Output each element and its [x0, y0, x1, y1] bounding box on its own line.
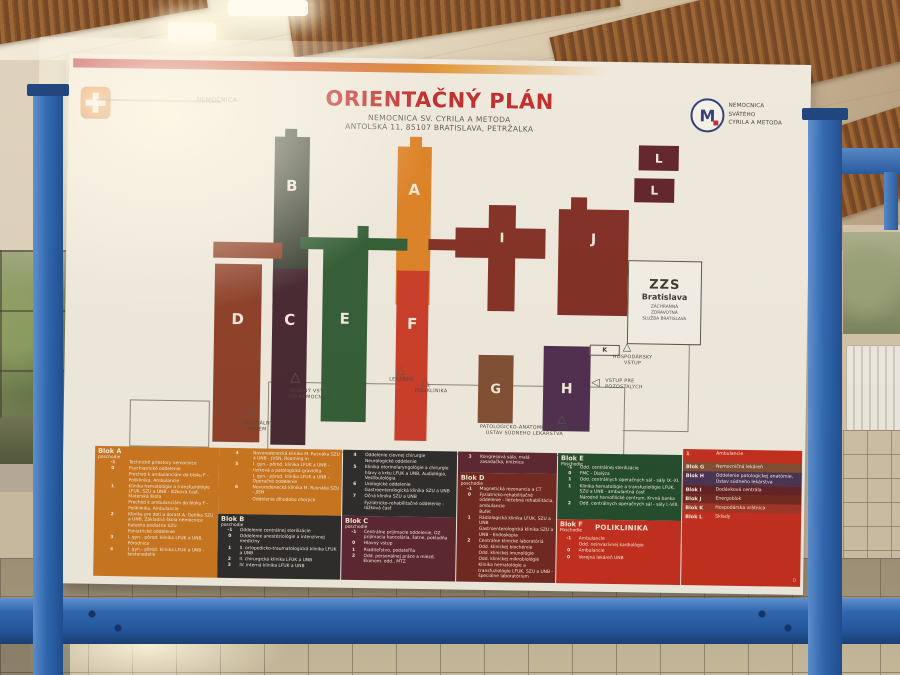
- zzs-station-box: ZZS Bratislava ZÁCHRANNÁ ZDRAVOTNÁ SLUŽB…: [627, 260, 702, 345]
- legend-row: 4I. gyn.- pôrod. klinika LFUK a UNB - še…: [95, 547, 215, 559]
- entrance-marker-icon: △: [623, 341, 632, 352]
- walkway-outline: [129, 399, 210, 447]
- entrance-marker-icon: △: [290, 371, 300, 384]
- legend-block-c: Blok C poschodie -1Centrálne prijímacie …: [341, 516, 456, 582]
- blue-rail-top-right: [842, 148, 900, 174]
- legend-block-b: Blok B poschodie -1Oddelenie centrálnej …: [217, 514, 341, 580]
- entrance-marker-icon: △: [247, 403, 257, 416]
- page-title: ORIENTAČNÝ PLÁN: [249, 85, 631, 115]
- building-connector: [428, 239, 456, 250]
- building-d-wing: [213, 242, 282, 259]
- legend-row: 1Klinika hematológie a transfuziológie L…: [560, 484, 680, 496]
- entrance-marker-icon: △: [396, 365, 405, 376]
- legend-row: Blok LSklady: [682, 512, 801, 523]
- legend-row: 0Fyziatricko-rehabilitačné oddelenie - l…: [459, 493, 554, 510]
- legend-block-header: Blok F Poschodie: [560, 521, 583, 534]
- label-policlinic: POLIKLINIKA: [394, 389, 468, 397]
- legend-block-b-cont: 4Oddelenie cievnej chirurgieNeurologické…: [342, 450, 457, 518]
- legend-block-a-cont: 4Novorodenecká klinika M. Rusnáka SZU a …: [218, 448, 342, 516]
- legend-row: 2Odd. centrálnych operačných sál - sály …: [559, 501, 679, 508]
- zzs-small-text: ZÁCHRANNÁ ZDRAVOTNÁ SLUŽBA BRATISLAVA: [628, 304, 700, 323]
- legend-row: 2Klinika pre deti a dorast A. Getlíka SZ…: [96, 512, 216, 524]
- legend-block-header: Blok C poschodie: [345, 518, 368, 531]
- building-g: G: [478, 355, 514, 424]
- blue-post-left: [33, 88, 63, 675]
- legend-block-f-policlinic: Blok F Poschodie POLIKLINIKA -1Ambulanci…: [556, 519, 681, 585]
- label-bereaved-entrance: VSTUP PRE POZOSTALÝCH: [605, 379, 669, 393]
- legend-row: 6Novorodenecká klinika M. Rusnáka SZU - …: [220, 485, 339, 497]
- building-l1: L: [639, 145, 679, 171]
- legend-row: 1II. ortopedicko-traumatologická klinika…: [219, 545, 338, 557]
- legend-row: I. gyn.- pôrod. klinika LFUK a UNB - Ope…: [221, 474, 340, 486]
- legend-row: 5Klinika otorinolaryngológie a chirurgie…: [345, 465, 455, 482]
- logo-red-dot: [713, 120, 718, 125]
- policlinic-title: POLIKLINIKA: [595, 524, 648, 533]
- legend-row: Prechod k ambulanciám do bloku F - Polik…: [97, 472, 217, 484]
- logo-left-text: NEMOCNICA: [197, 96, 238, 104]
- legend-block-d: Blok D poschodie -1Magnetická rezonancia…: [456, 473, 557, 584]
- blue-beam-bottom: [0, 598, 900, 644]
- legend-block-a: Blok A poschodie -1Technické priestory n…: [93, 446, 219, 578]
- walkway-line: [623, 430, 689, 432]
- legend-row: 1Klinika hematológie a transfuziológie L…: [96, 484, 216, 501]
- photo-scene: NEMOCNICA ORIENTAČNÝ PLÁN NEMOCNICA SV. …: [0, 0, 900, 675]
- entrance-marker-left-icon: ◁: [591, 377, 600, 388]
- light-fixture: [168, 22, 216, 42]
- legend-row: 1Rádiologická klinika LFUK, SZU a UNB: [459, 515, 554, 527]
- tiled-wall: [843, 430, 900, 570]
- legend-row: 3IV. interná klinika LFUK a UNB: [219, 563, 338, 570]
- label-central-admission: CENTRÁLNY PRÍJEM: [219, 421, 295, 435]
- building-h: H: [542, 346, 590, 432]
- legend-block-header: Blok D poschodie: [461, 475, 485, 488]
- legend-mark: D: [793, 579, 797, 584]
- legend-row: Klinika hematológie a transfuziológie LF…: [458, 563, 553, 580]
- legend-row: Gastroenterologická klinika SZU a UNB - …: [459, 527, 554, 539]
- legend-row: 0Verejná lekáreň UNB: [558, 555, 678, 562]
- legend-row: 3Kongresová sála, malá zasadačka, knižni…: [460, 455, 555, 467]
- label-pathology: PATOLOGICKO-ANATOMICKÉ ODD. ÚSTAV SÚDNEH…: [449, 424, 599, 439]
- entrance-marker-icon: △: [558, 413, 567, 424]
- cyril-method-logo-icon: M: [690, 98, 725, 133]
- legend-row: -1Centrálne prijímacie oddelenie, OZ pri…: [344, 530, 454, 542]
- blue-post-right: [808, 112, 842, 675]
- logo-right-text: NEMOCNICA SVÄTÉHO CYRILA A METODA: [728, 102, 782, 128]
- blue-rail-leg: [884, 172, 898, 230]
- board-gradient-stripe: [73, 58, 607, 75]
- blue-post-right-cap: [802, 108, 848, 120]
- legend-block-header: Blok A poschodie: [98, 448, 121, 461]
- orientation-board: NEMOCNICA ORIENTAČNÝ PLÁN NEMOCNICA SV. …: [61, 53, 811, 595]
- label-main-entrance: HLAVNÝ VSTUP DO NEMOCNICE: [260, 388, 360, 403]
- legend-row: Fyziatricko-rehabilitačné oddelenie - lô…: [344, 500, 454, 512]
- building-j: J: [557, 209, 629, 316]
- building-e-chimney: [357, 226, 368, 239]
- legend-row: 3I. gyn.- pôrod. klinika LFUK a UNB, Pôr…: [96, 535, 216, 547]
- legend-block-e: Blok E Poschodie -1Odd. centrálnej steri…: [557, 453, 682, 521]
- building-i: I: [487, 205, 516, 311]
- light-fixture: [228, 0, 308, 16]
- legend-other-blocks: 1 Ambulancie Blok GNemocničná lekáreňBlo…: [681, 449, 802, 587]
- entrance-marker-icon: △: [421, 376, 430, 387]
- legend-row: Prechod k ambulanciám do bloku F - Polik…: [96, 500, 216, 512]
- building-l2: L: [634, 178, 674, 203]
- building-f: F: [394, 271, 429, 441]
- legend-row: 0Oddelenie anestéziológie a intenzívnej …: [220, 534, 339, 546]
- legend-row: Oddelenie dlhodobo chorých: [220, 496, 339, 503]
- legend-block-header: Blok B poschodie: [221, 516, 244, 529]
- legend-block-c-cont: 3Kongresová sála, malá zasadačka, knižni…: [458, 452, 557, 475]
- legend-row: 2Odd. personálnej práce a miezd, Ekonom.…: [343, 553, 453, 565]
- blue-post-left-cap: [27, 84, 69, 96]
- radiator: [846, 345, 900, 431]
- label-service-entrance: HOSPODÁRSKY VSTUP: [600, 355, 664, 369]
- window-right: [843, 232, 900, 334]
- building-c: C: [270, 269, 308, 446]
- legend-row: 5I. gyn.- pôrod. klinika LFUK a UNB - ri…: [221, 462, 340, 474]
- hospital-cross-logo-icon: [80, 87, 110, 119]
